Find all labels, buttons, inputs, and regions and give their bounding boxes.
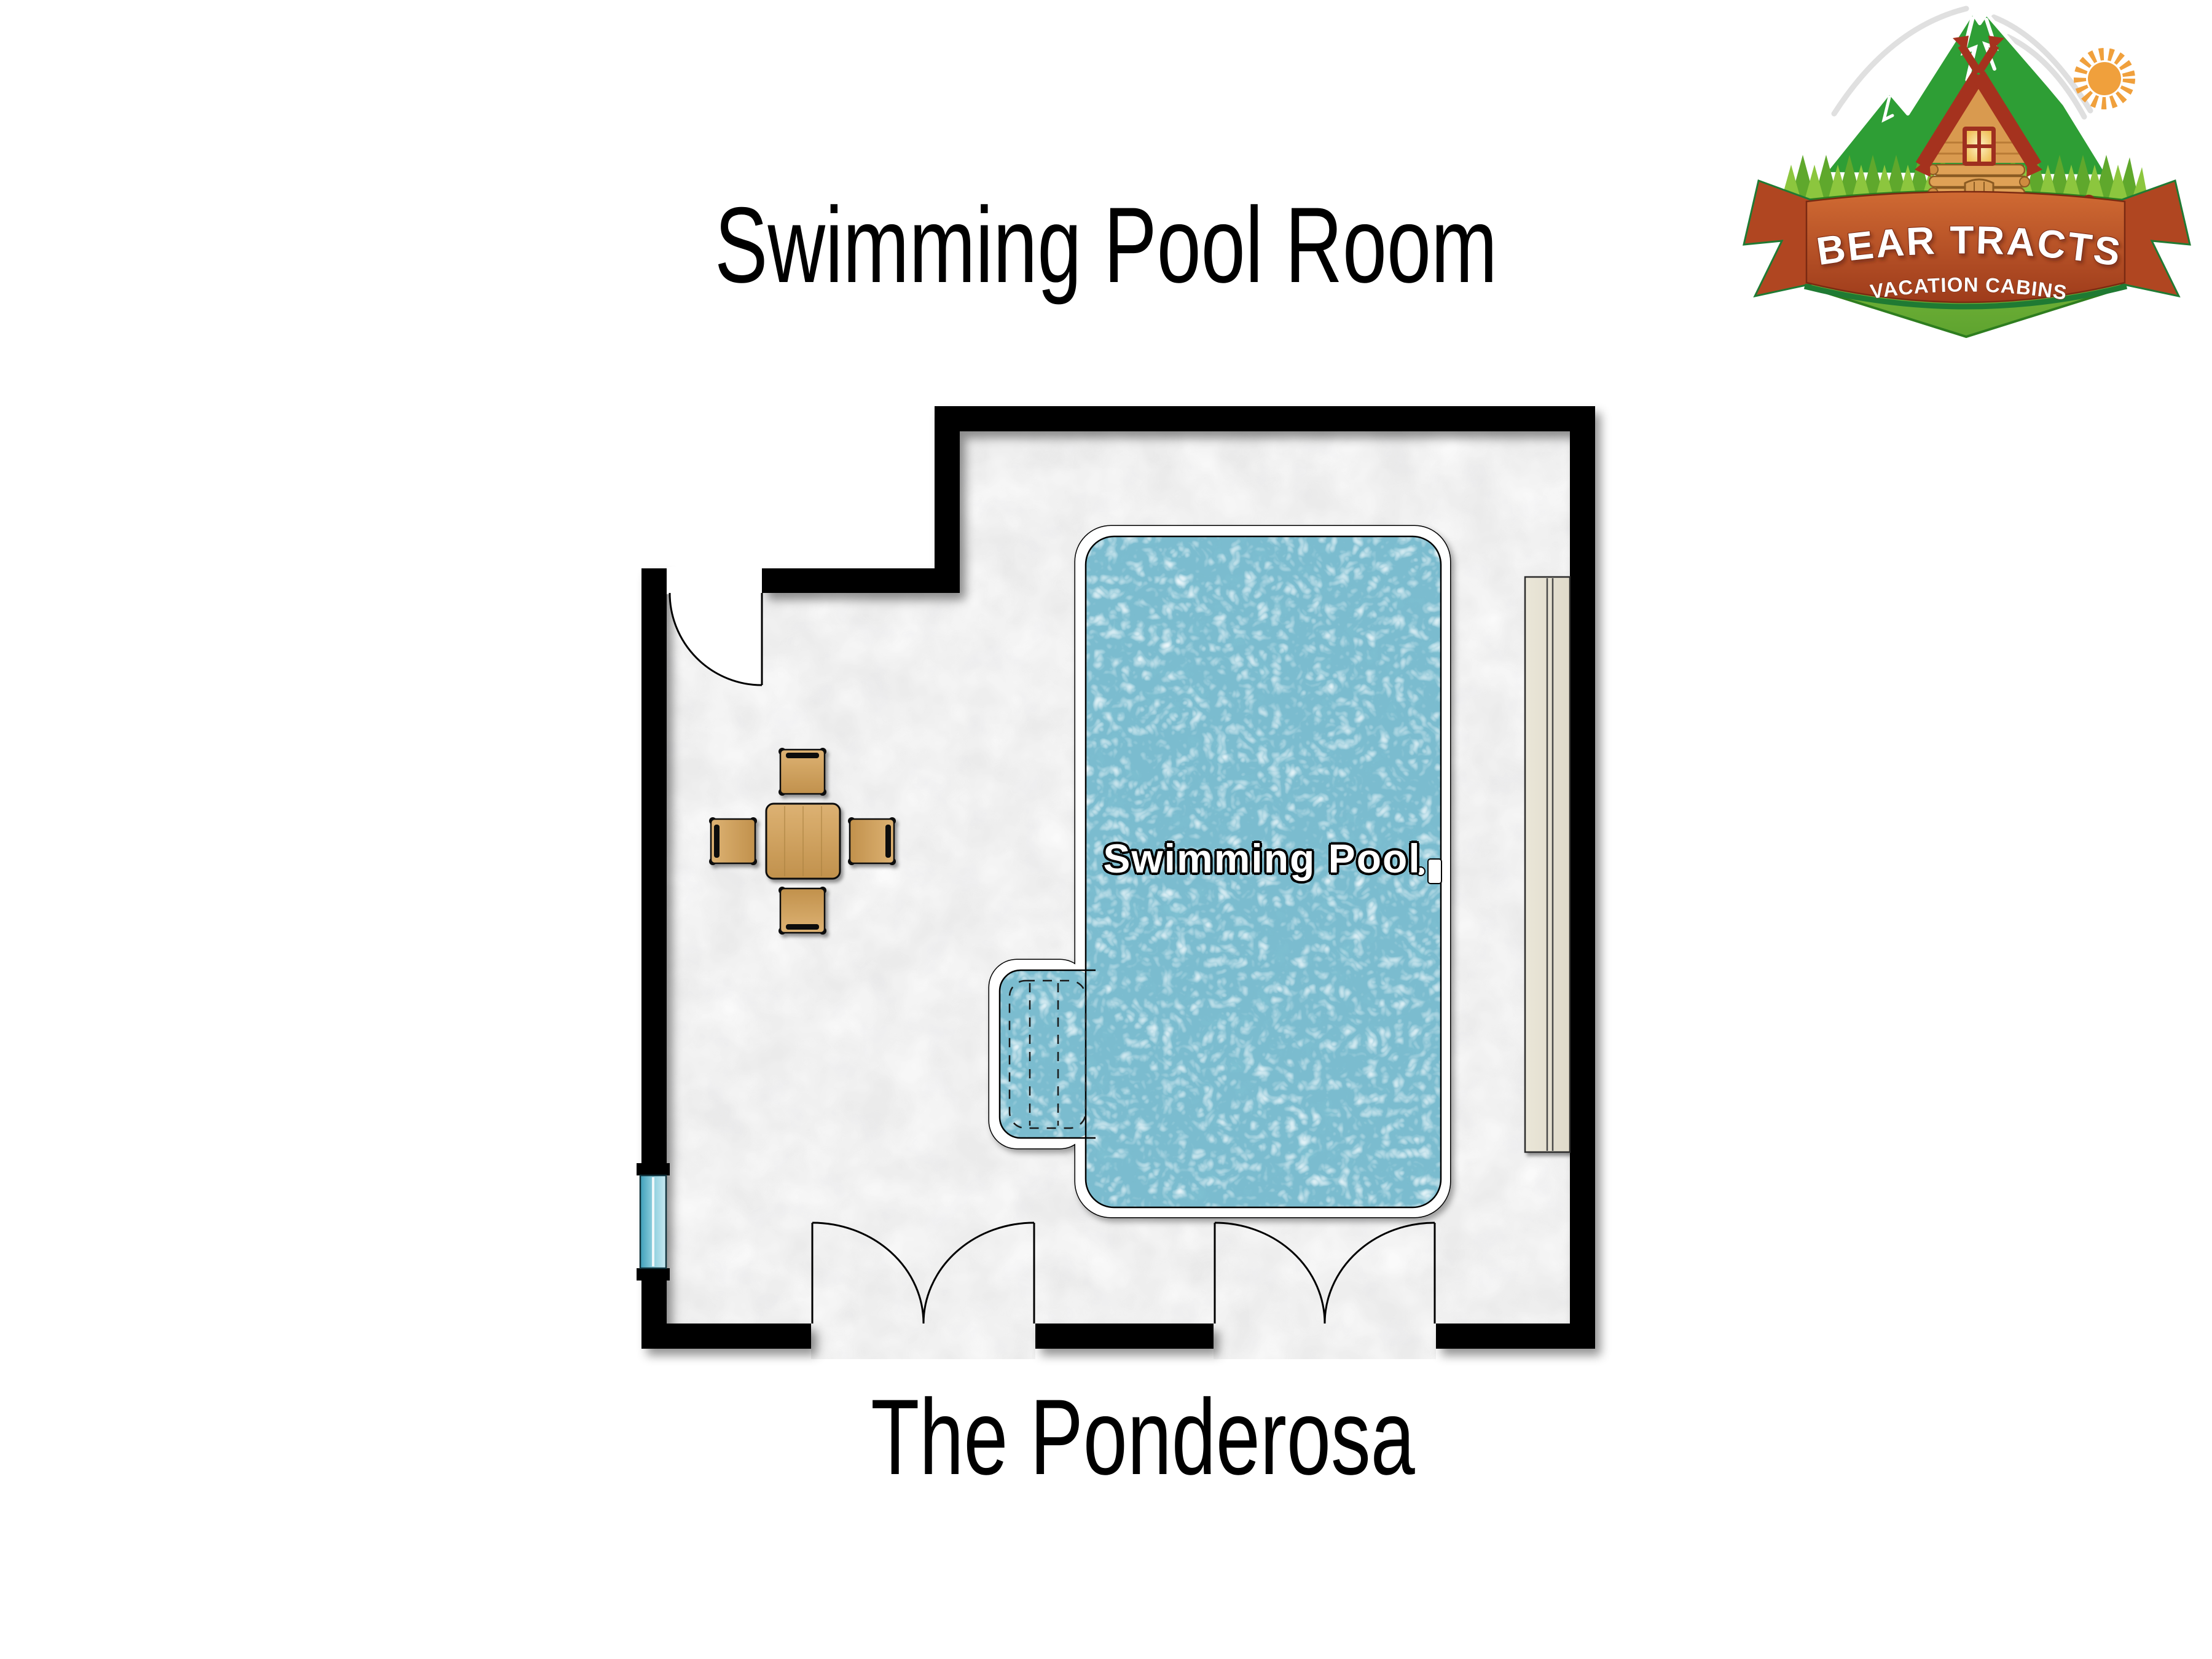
counter: [1525, 577, 1570, 1152]
chair-top: [779, 748, 826, 796]
entry-door-opening: [667, 567, 762, 594]
window: [637, 1163, 670, 1281]
ribbon-tail-right: [2115, 181, 2190, 296]
pool-label: Swimming Pool: [1078, 838, 1446, 879]
chair-right: [848, 817, 896, 865]
page: BEAR TRACTS VACATION CABINS Swimming Poo…: [0, 0, 2212, 1659]
chair-left: [709, 817, 757, 865]
dining-table: [766, 804, 840, 879]
chair-bottom: [779, 887, 826, 935]
page-subtitle: The Ponderosa: [324, 1384, 1961, 1491]
sun-icon: [2080, 54, 2129, 103]
page-title: Swimming Pool Room: [288, 192, 1924, 299]
